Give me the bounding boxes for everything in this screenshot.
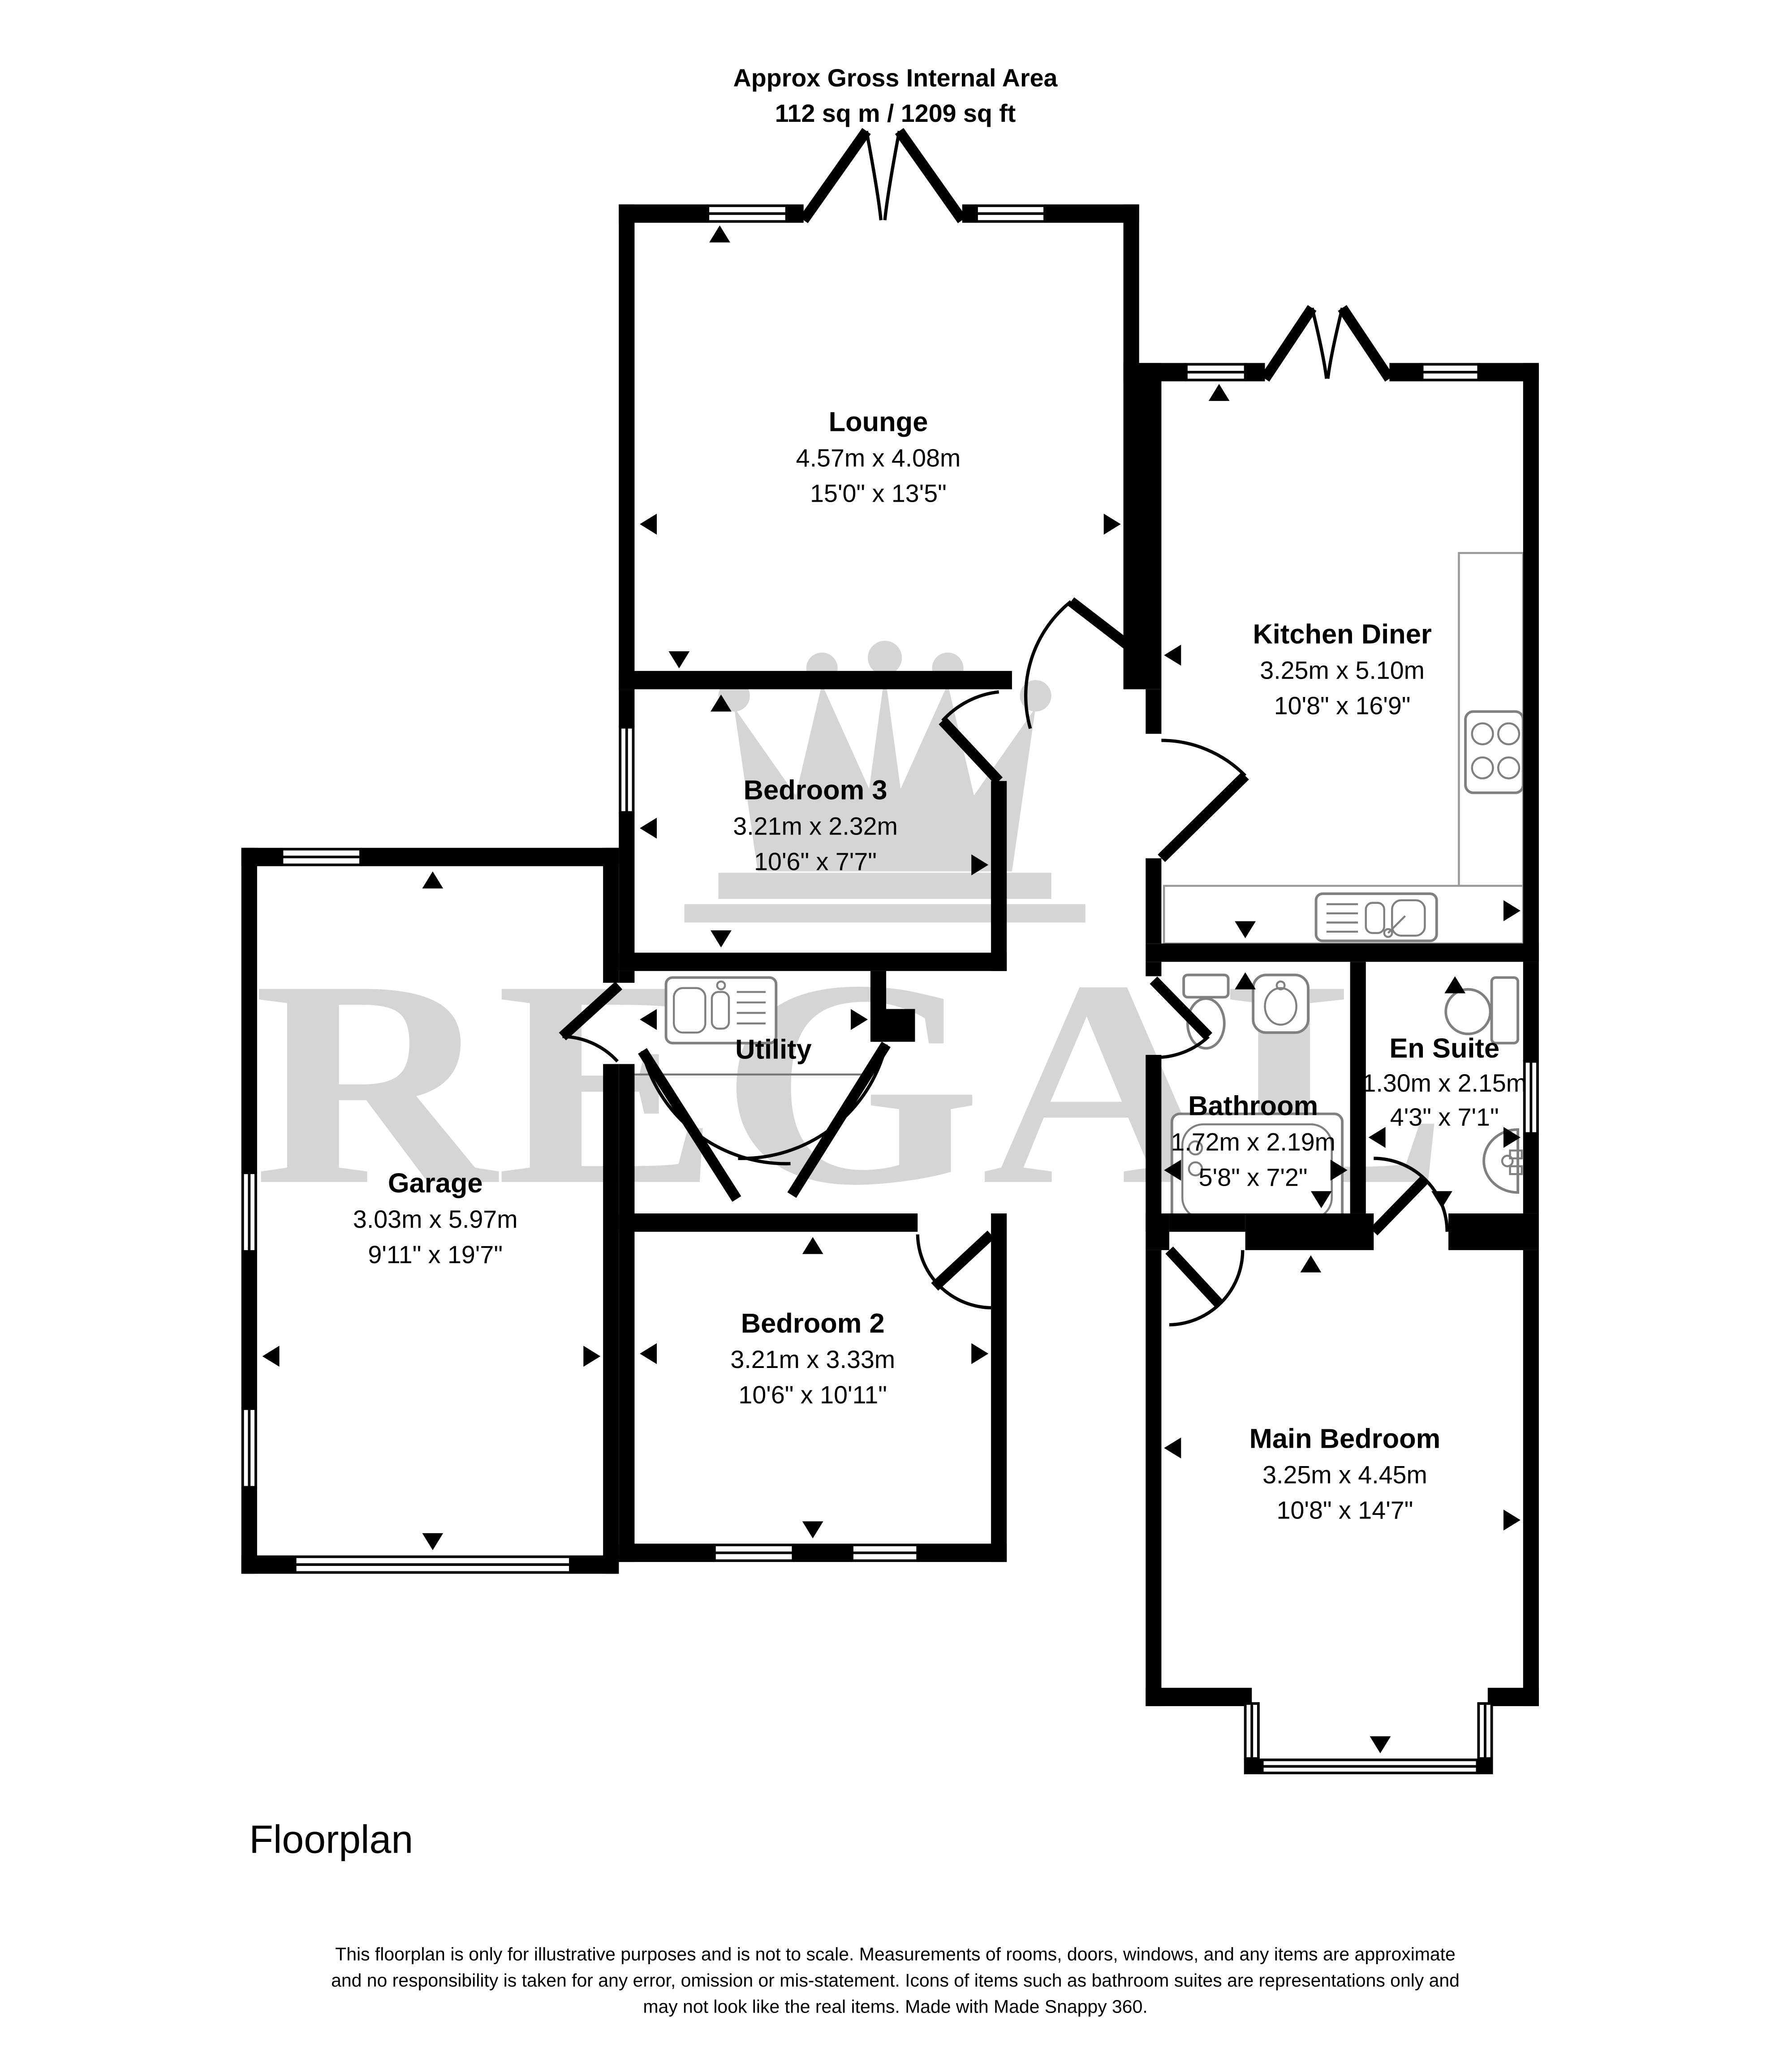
floorplan-title: Floorplan bbox=[249, 1818, 413, 1862]
room-label-main-bedroom: Main Bedroom 3.25m x 4.45m 10'8" x 14'7" bbox=[1249, 1424, 1441, 1524]
bedroom2-metric: 3.21m x 3.33m bbox=[730, 1346, 895, 1373]
garage-window-icon bbox=[243, 1173, 256, 1252]
bedroom3-metric: 3.21m x 2.32m bbox=[733, 812, 898, 840]
kitchen-diner-metric: 3.25m x 5.10m bbox=[1260, 656, 1425, 684]
bedroom2-window-icon bbox=[852, 1545, 918, 1561]
kitchen-sink-icon bbox=[1316, 894, 1437, 941]
en-suite-name: En Suite bbox=[1389, 1033, 1499, 1064]
garage-door-icon bbox=[295, 1557, 570, 1572]
en-suite-metric: 1.30m x 2.15m bbox=[1362, 1069, 1527, 1097]
floorplan-canvas: Approx Gross Internal Area 112 sq m / 12… bbox=[0, 0, 1792, 2056]
utility-name: Utility bbox=[735, 1034, 812, 1065]
bedroom3-name: Bedroom 3 bbox=[744, 775, 887, 806]
bedroom3-window-icon bbox=[620, 727, 633, 813]
bathroom-imperial: 5'8" x 7'2" bbox=[1199, 1164, 1308, 1191]
bay-window-icon bbox=[1262, 1760, 1478, 1773]
gross-internal-area-value: 112 sq m / 1209 sq ft bbox=[775, 99, 1016, 127]
bathroom-basin-icon bbox=[1253, 975, 1308, 1033]
gross-internal-area-label: Approx Gross Internal Area bbox=[733, 64, 1058, 92]
hob-icon bbox=[1465, 712, 1523, 793]
room-label-bedroom3: Bedroom 3 3.21m x 2.32m 10'6" x 7'7" bbox=[733, 775, 898, 876]
bedroom3-imperial: 10'6" x 7'7" bbox=[754, 847, 877, 875]
lounge-name: Lounge bbox=[829, 406, 928, 437]
utility-sink-icon bbox=[666, 977, 776, 1043]
bathroom-name: Bathroom bbox=[1188, 1091, 1318, 1122]
bedroom2-imperial: 10'6" x 10'11" bbox=[738, 1381, 887, 1409]
main-bedroom-imperial: 10'8" x 14'7" bbox=[1277, 1497, 1413, 1524]
lounge-imperial: 15'0" x 13'5" bbox=[810, 479, 947, 507]
garage-imperial: 9'11" x 19'7" bbox=[368, 1241, 503, 1269]
kitchen-window-icon bbox=[1422, 364, 1479, 380]
disclaimer-line1: This floorplan is only for illustrative … bbox=[335, 1944, 1456, 1964]
garage-window-icon bbox=[282, 849, 361, 865]
garage-metric: 3.03m x 5.97m bbox=[353, 1205, 518, 1233]
lounge-metric: 4.57m x 4.08m bbox=[796, 444, 961, 472]
lounge-window-icon bbox=[708, 206, 787, 221]
bedroom2-name: Bedroom 2 bbox=[741, 1308, 885, 1339]
bedroom2-window-icon bbox=[715, 1545, 793, 1561]
garage-window-icon bbox=[243, 1409, 256, 1488]
bathroom-metric: 1.72m x 2.19m bbox=[1171, 1128, 1335, 1156]
kitchen-window-icon bbox=[1186, 364, 1245, 380]
garage-name: Garage bbox=[388, 1168, 483, 1199]
main-bedroom-name: Main Bedroom bbox=[1249, 1424, 1441, 1454]
disclaimer-line2: and no responsibility is taken for any e… bbox=[331, 1970, 1460, 1991]
kitchen-diner-imperial: 10'8" x 16'9" bbox=[1274, 692, 1411, 719]
en-suite-imperial: 4'3" x 7'1" bbox=[1390, 1103, 1499, 1131]
bay-window-icon bbox=[1245, 1703, 1258, 1759]
lounge-window-icon bbox=[977, 206, 1045, 221]
room-label-utility: Utility bbox=[735, 1034, 812, 1065]
bay-window-icon bbox=[1478, 1703, 1491, 1759]
main-bedroom-metric: 3.25m x 4.45m bbox=[1262, 1461, 1427, 1489]
room-label-kitchen-diner: Kitchen Diner 3.25m x 5.10m 10'8" x 16'9… bbox=[1253, 619, 1431, 719]
room-label-bedroom2: Bedroom 2 3.21m x 3.33m 10'6" x 10'11" bbox=[730, 1308, 895, 1409]
disclaimer-line3: may not look like the real items. Made w… bbox=[643, 1996, 1147, 2017]
kitchen-diner-name: Kitchen Diner bbox=[1253, 619, 1431, 649]
